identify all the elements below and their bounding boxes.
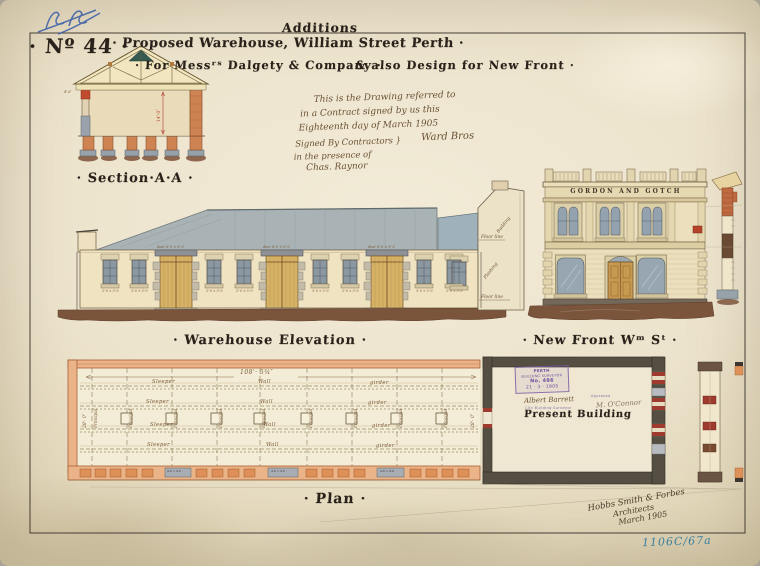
- section-label: · Section·A·A ·: [70, 172, 201, 185]
- title-main: · Proposed Warehouse, William Street Per…: [88, 37, 489, 50]
- title-sub-right: & also Design for New Front ·: [355, 60, 566, 72]
- door-lintel-note: 4·6 × 9·0: [167, 470, 181, 473]
- present-building-label: Present Building: [524, 410, 632, 420]
- street-wall-strip: [698, 362, 743, 482]
- window-size-note: 3'·0 × 5'·0: [446, 290, 463, 293]
- window-size-note: 3'·0 × 5'·0: [416, 290, 433, 293]
- row-label-girder: girder: [368, 401, 387, 406]
- door-size-note: door 6'·0 × 9'·0: [368, 246, 395, 249]
- principal-label: Principal: [219, 409, 223, 428]
- approval-note: Approved: [591, 395, 611, 399]
- principal-label: Principal: [94, 409, 98, 428]
- photographed-drawing: { "sheet": { "number_label": "· Nº 44 ·"…: [0, 0, 760, 566]
- facade-upper-windows: [553, 203, 667, 242]
- window-size-note: 3'·0 × 5'·0: [342, 290, 359, 293]
- row-label-wall: Wall: [260, 400, 273, 405]
- plan-label: · Plan ·: [280, 492, 391, 506]
- row-label-sleeper: Sleeper: [147, 443, 170, 448]
- window-size-note: 3'·0 × 5'·0: [102, 290, 119, 293]
- contract-line: in a Contract signed by us this: [300, 106, 440, 120]
- pen-initials-squiggle: [38, 10, 100, 34]
- door-size-note: door 6'·0 × 9'·0: [157, 246, 184, 249]
- principal-label: Principal: [309, 409, 313, 428]
- elevation-drawing: [58, 181, 524, 321]
- row-label-sleeper: Sleeper: [152, 380, 175, 385]
- drawing-linework: [0, 0, 760, 566]
- elevation-label: · Warehouse Elevation ·: [160, 334, 381, 347]
- door-lintel-note: 4·6 × 9·0: [271, 470, 285, 473]
- contract-line: Signed By Contractors }: [295, 137, 401, 149]
- stamp-line: 21 · 3 · 1905: [526, 385, 559, 391]
- floor-line-note-lower: Floor line: [481, 296, 503, 301]
- catalog-reference: 1106C/67a: [642, 535, 712, 548]
- principal-label: Principal: [444, 409, 448, 428]
- row-label-girder: girder: [372, 424, 391, 429]
- title-additions: Additions: [250, 22, 391, 35]
- floor-line-note-upper: Floor line: [481, 236, 503, 241]
- row-label-sleeper: Sleeper: [150, 423, 173, 428]
- facade-door: [605, 256, 636, 302]
- row-label-sleeper: Sleeper: [146, 400, 169, 405]
- present-building-walls: [483, 357, 665, 484]
- plan-length-dim: 108'· 5¾″: [240, 370, 273, 376]
- paper-sheet: · Nº 44 · Additions · Proposed Warehouse…: [0, 0, 760, 566]
- principal-label: Principal: [354, 409, 358, 428]
- title-sub-left: · For Messʳˢ Dalgety & Company ·: [135, 60, 376, 72]
- principal-label: Principal: [174, 409, 178, 428]
- window-size-note: 3'·0 × 5'·0: [206, 290, 223, 293]
- contract-note: This is the Drawing referred to in a Con…: [292, 87, 567, 180]
- principal-label: Principal: [399, 409, 403, 428]
- council-stamp: PERTH BUILDING SURVEYOR No. 486 21 · 3 ·…: [515, 365, 570, 394]
- new-front-label: · New Front Wᵐ Sᵗ ·: [515, 334, 686, 347]
- window-size-note: 3'·0 × 5'·0: [312, 290, 329, 293]
- row-label-girder: girder: [376, 444, 395, 449]
- plan-width-dim: 28'· 0″: [84, 414, 89, 428]
- principal-label: Principal: [262, 409, 266, 428]
- frieze-text: GORDON AND GOTCH: [556, 189, 696, 195]
- stamp-line: PERTH: [534, 369, 550, 374]
- contract-line: Eighteenth day of March 1905: [299, 120, 439, 134]
- row-label-wall: Wall: [266, 443, 279, 448]
- door-lintel-note: 4·6 × 9·0: [380, 470, 394, 473]
- contract-witness: Chas. Raynor: [306, 162, 368, 173]
- window-size-note: 3'·0 × 5'·0: [236, 290, 253, 293]
- window-size-note: 3'·0 × 5'·0: [131, 290, 148, 293]
- parapet-wall: [478, 181, 524, 310]
- section-height-dim: 14'·0″: [158, 109, 163, 122]
- elevation-ground: [58, 308, 506, 321]
- section-eave-note: 4'·6″: [64, 91, 72, 95]
- principal-label: Principal: [129, 409, 133, 428]
- plan-width-dim: 28'· 0″: [472, 414, 477, 428]
- contract-signature: Ward Bros: [421, 131, 474, 143]
- row-label-girder: girder: [370, 381, 389, 386]
- door-size-note: door 6'·0 × 9'·0: [263, 246, 290, 249]
- row-label-wall: Wall: [258, 380, 271, 385]
